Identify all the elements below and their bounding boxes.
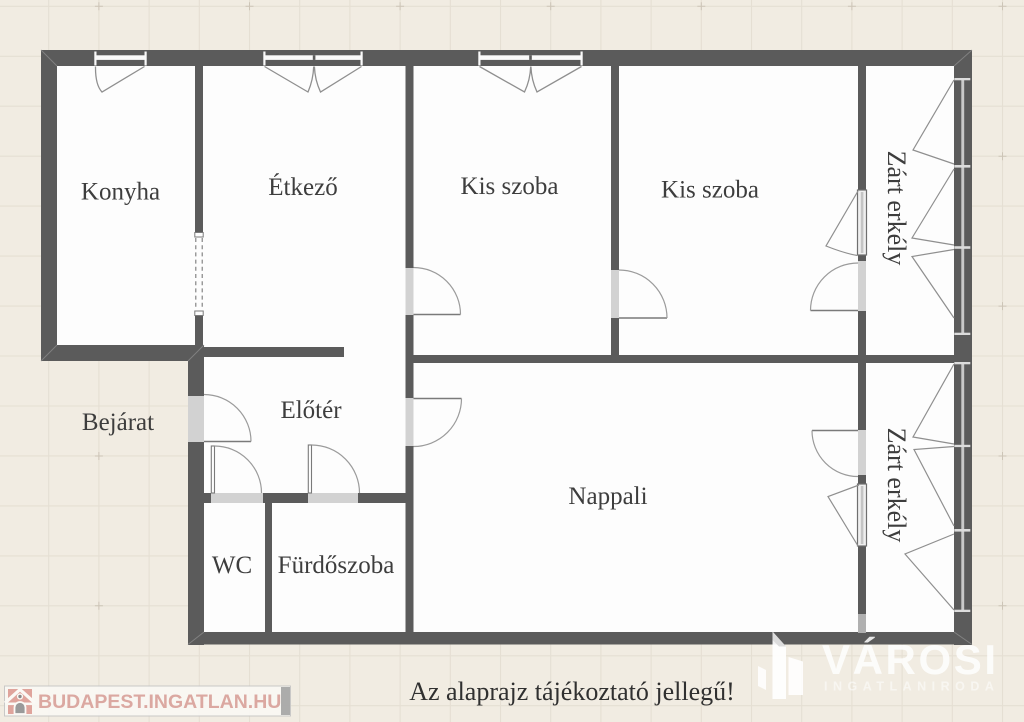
svg-text:Az alaprajz tájékoztató jelleg: Az alaprajz tájékoztató jellegű!: [409, 677, 735, 706]
svg-text:Zárt erkély: Zárt erkély: [882, 151, 911, 266]
svg-text:WC: WC: [212, 552, 252, 579]
svg-text:Konyha: Konyha: [81, 179, 160, 206]
svg-text:Fürdőszoba: Fürdőszoba: [278, 552, 395, 579]
svg-text:Étkező: Étkező: [268, 173, 337, 201]
svg-text:Bejárat: Bejárat: [82, 409, 154, 436]
svg-text:Kis szoba: Kis szoba: [661, 177, 759, 204]
svg-text:BUDAPEST.INGATLAN.HU: BUDAPEST.INGATLAN.HU: [38, 691, 281, 713]
svg-text:INGATLANIRODA: INGATLANIRODA: [824, 680, 999, 694]
svg-text:Kis szoba: Kis szoba: [461, 173, 559, 200]
svg-text:Zárt erkély: Zárt erkély: [882, 428, 911, 543]
svg-text:Előtér: Előtér: [280, 397, 342, 424]
svg-text:Nappali: Nappali: [568, 483, 647, 510]
svg-text:VÁROSI: VÁROSI: [822, 636, 999, 683]
